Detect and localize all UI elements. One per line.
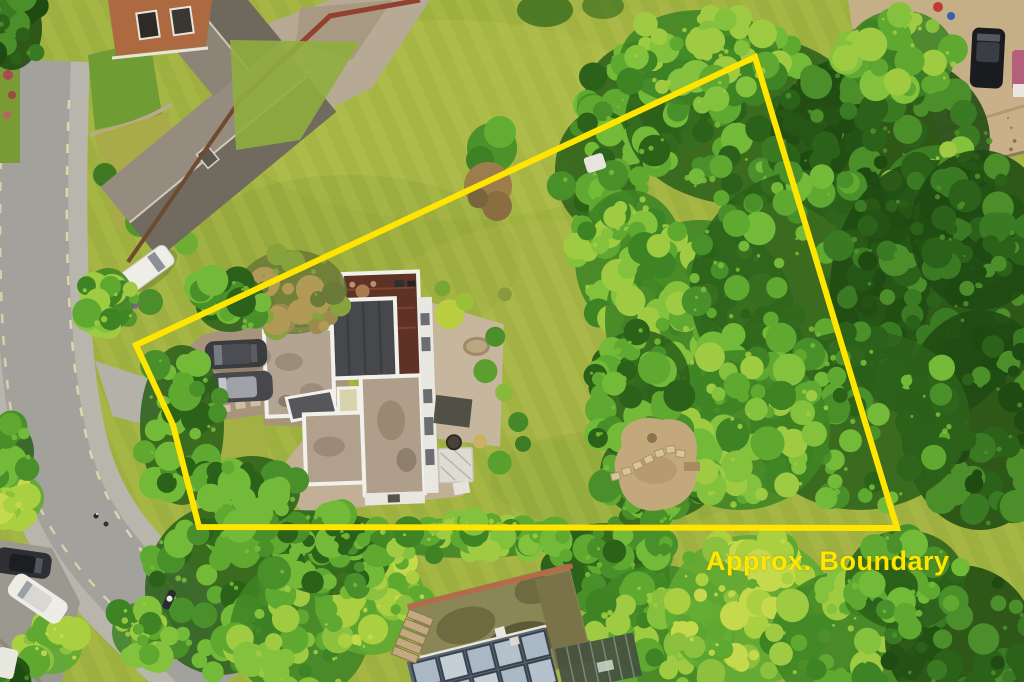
tree-canopy-blob [940,234,946,240]
tree-canopy-blob [607,610,613,616]
tree-canopy-blob [628,341,632,345]
tree-canopy-blob [755,488,768,501]
tree-canopy-blob [847,579,850,582]
tree-canopy-blob [322,281,346,305]
tree-canopy-blob [927,660,947,680]
partial-car [1013,84,1024,97]
tree-canopy-blob [724,275,750,301]
tree-canopy-blob [123,282,138,297]
tree-canopy-blob [885,536,889,540]
stone [676,450,686,458]
tree-canopy-blob [601,373,605,377]
tree-canopy-blob [861,360,867,366]
tree-canopy-blob [651,28,668,45]
tree-canopy-blob [299,664,312,677]
tree-canopy-blob [748,413,751,416]
tree-canopy-blob [182,578,187,583]
tree-canopy-blob [306,515,311,520]
tree-canopy-blob [830,355,836,361]
tree-canopy-blob [325,623,327,625]
tree-canopy-blob [603,465,609,471]
tree-canopy-blob [745,158,748,161]
tree-canopy-blob [870,128,876,134]
tree-canopy-blob [663,380,695,412]
tree-canopy-blob [951,558,969,576]
tree-canopy-blob [882,18,885,21]
tree-canopy-blob [730,417,734,421]
tree-canopy-blob [986,629,990,633]
tree-canopy-blob [921,445,946,470]
tree-canopy-blob [802,390,806,394]
tree-canopy-blob [854,28,888,62]
tree-canopy-blob [709,650,715,656]
window [424,417,434,435]
table [647,433,657,443]
tree-canopy-blob [943,77,946,80]
stone [235,401,246,409]
tree-canopy-blob [285,586,291,592]
tree-canopy-blob [489,519,495,525]
tree-canopy-blob [258,671,264,677]
tree-canopy-blob [427,538,430,541]
tree-canopy-blob [716,417,750,451]
tree-canopy-blob [654,338,661,345]
tree-canopy-blob [395,596,399,600]
tree-canopy-blob [129,314,132,317]
tree-canopy-blob [977,381,984,388]
tree-canopy-blob [291,575,297,581]
tree-canopy-blob [907,535,910,538]
tree-canopy-blob [232,281,235,284]
tree-canopy-blob [641,413,647,419]
door [388,494,400,502]
tree-canopy-blob [597,562,603,568]
tree-canopy-blob [798,482,802,486]
tree-canopy-blob [354,562,365,573]
tree-canopy-blob [918,26,922,30]
tree-canopy-blob [901,375,912,386]
tree-canopy-blob [910,590,915,595]
tree-canopy-blob [996,387,999,390]
tree-canopy-blob [280,677,283,680]
tree-canopy-blob [684,621,699,636]
tree-canopy-blob [841,613,844,616]
tree-canopy-blob [904,247,907,250]
tree-canopy-blob [597,547,600,550]
tree-canopy-blob [963,494,989,520]
tree-canopy-blob [343,533,350,540]
tree-canopy-blob [982,235,999,252]
tree-canopy-blob [393,516,424,547]
tree-canopy-blob [245,549,250,554]
tree-canopy-blob [854,248,860,254]
tree-canopy-blob [231,604,234,607]
window [423,389,432,403]
flower-bed [3,111,11,119]
tree-canopy-blob [895,409,922,436]
tree-canopy-blob [734,657,749,672]
tree-canopy-blob [726,554,728,556]
tree-canopy-blob [253,516,259,522]
tree-canopy-blob [835,73,840,78]
tree-canopy-blob [751,426,785,460]
stone-circle [464,338,489,355]
tree-canopy-blob [15,457,39,481]
tree-canopy-blob [280,570,284,574]
tree-canopy-blob [782,631,785,634]
tree-canopy-blob [255,609,265,619]
tree-canopy-blob [358,614,388,644]
tree-canopy-blob [357,641,362,646]
tree-canopy-blob [652,78,657,83]
tree-canopy-blob [904,289,922,307]
window [420,313,429,325]
tree-canopy-blob [145,419,167,441]
stone [610,472,620,481]
tree-canopy-blob [874,358,907,391]
tree-canopy-blob [611,405,615,409]
tree-canopy-blob [880,289,896,305]
tree-canopy-blob [850,419,855,424]
bbq-grill [394,280,404,287]
tree-canopy-blob [766,277,787,298]
tree-canopy-blob [773,354,806,387]
tree-canopy-blob [667,655,677,665]
tree-canopy-blob [243,319,248,324]
tree-canopy-blob [936,186,941,191]
tree-canopy-blob [290,497,295,502]
tree-canopy-blob [982,335,1004,357]
tree-canopy-blob [614,204,621,211]
tree-canopy-blob [929,355,955,381]
tree-canopy-blob [425,546,444,565]
tree-canopy-blob [694,589,707,602]
tree-canopy-blob [660,519,664,523]
tree-canopy-blob [751,384,766,399]
tree-canopy-blob [125,632,130,637]
bush [137,289,163,315]
tree-canopy-blob [682,28,687,33]
tree-canopy-blob [653,558,655,560]
tree-canopy-blob [935,194,940,199]
tree-canopy-blob [1009,600,1023,614]
tree-canopy-blob [267,521,270,524]
tree-canopy-blob [800,65,825,90]
tree-canopy-blob [806,411,811,416]
tree-canopy-blob [819,445,830,456]
tree-canopy-blob [657,554,663,560]
tree-canopy-blob [653,603,658,608]
tree-canopy-blob [963,301,968,306]
tree-canopy-blob [326,516,332,522]
tree-canopy-blob [810,164,835,189]
tree-canopy-blob [870,59,888,77]
tree-canopy-blob [962,374,974,386]
tree-canopy-blob [363,645,365,647]
garden-item-red [933,2,943,12]
tree-canopy-blob [950,100,977,127]
tree-canopy-blob [262,275,265,278]
skylight [338,388,359,415]
tree-canopy-blob [867,403,890,426]
tree-canopy-blob [11,34,14,37]
tree-canopy-blob [392,538,396,542]
tree-canopy-blob [776,589,809,622]
tree-canopy-blob [663,32,668,37]
tree-canopy-blob [669,633,688,652]
tree-canopy-blob [338,633,353,648]
tree-canopy-blob [26,455,31,460]
tree-canopy-blob [828,474,843,489]
tree-canopy-blob [683,326,689,332]
tree-canopy-blob [1009,435,1013,439]
tree-canopy-blob [579,63,607,91]
tree-canopy-blob [728,591,734,597]
tree-canopy-blob [347,514,351,518]
tree-canopy-blob [823,230,854,261]
tree-canopy-blob [869,484,875,490]
tree-canopy-blob [748,19,777,48]
tree-canopy-blob [774,258,784,268]
tree-canopy-blob [827,604,838,615]
tree-canopy-blob [639,149,644,154]
tree-canopy-blob [272,268,279,275]
tree-canopy-blob [713,261,717,265]
tree-canopy-blob [955,221,972,238]
aerial-photo-canvas [0,0,1024,682]
tree-canopy-blob [266,244,288,266]
tree-canopy-blob [647,234,671,258]
tree-canopy-blob [607,64,612,69]
tree-canopy-blob [824,405,829,410]
tree-canopy-blob [11,53,22,64]
tree-canopy-blob [640,196,646,202]
tree-canopy-blob [319,321,330,332]
tree-canopy-blob [11,434,17,440]
tree-canopy-blob [614,347,621,354]
tree-canopy-blob [547,171,576,200]
tree-canopy-blob [298,574,303,579]
tree-canopy-blob [896,200,900,204]
tree-canopy-blob [858,251,877,270]
tree-canopy-blob [766,323,797,354]
stone-roof-speckle [1013,139,1017,143]
tree-canopy-blob [802,421,827,446]
tree-canopy-blob [699,441,706,448]
tree-canopy-blob [192,602,218,628]
tree-canopy-blob [709,176,715,182]
tree-canopy-blob [833,388,848,403]
tree-canopy-blob [932,507,935,510]
tree-canopy-blob [729,314,733,318]
tree-canopy-blob [149,571,166,588]
tree-canopy-blob [301,571,323,593]
tree-canopy-blob [282,283,294,295]
tree-canopy-blob [114,293,118,297]
tree-canopy-blob [868,282,871,285]
tree-canopy-blob [710,155,733,178]
tree-canopy-blob [18,428,30,440]
tree-canopy-blob [898,616,922,640]
tree-canopy-blob [101,316,107,322]
tree-canopy-blob [744,194,762,212]
tree-canopy-blob [704,86,729,111]
tree-canopy-blob [731,457,735,461]
tree-canopy-blob [289,546,301,558]
tree-canopy-blob [910,11,915,16]
tree-canopy-blob [946,51,950,55]
tree-canopy-blob [858,570,885,597]
tree-canopy-blob [184,350,211,377]
tree-canopy-blob [661,671,665,675]
tree-canopy-blob [313,650,318,655]
tree-canopy-blob [659,543,670,554]
tree-canopy-blob [24,675,29,680]
tree-canopy-blob [705,230,709,234]
tree-canopy-blob [215,488,221,494]
tree-canopy-blob [137,635,149,647]
tree-canopy-blob [765,624,783,642]
tree-canopy-blob [160,627,179,646]
tree-canopy-blob [790,400,815,425]
tree-canopy-blob [810,659,821,670]
tree-canopy-blob [624,227,628,231]
tree-canopy-blob [648,146,653,151]
tree-canopy-blob [406,571,420,585]
tree-canopy-blob [827,193,830,196]
flower-bed [3,70,13,80]
tree-canopy-blob [809,326,815,332]
tree-canopy-blob [840,102,858,120]
tree-canopy-blob [689,360,694,365]
tree-canopy-blob [647,593,653,599]
tree-canopy-blob [816,332,820,336]
tree-canopy-blob [718,81,721,84]
tree-canopy-blob [122,617,129,624]
tree-canopy-blob [996,447,1001,452]
tree-canopy-blob [306,560,311,565]
tree-canopy-blob [837,171,854,188]
tree-canopy-blob [327,541,338,552]
window [421,337,430,351]
tree-canopy-blob [153,641,157,645]
tree-canopy-blob [827,367,846,386]
tree-canopy-blob [465,521,468,524]
tree-canopy-blob [691,234,713,256]
tree-canopy-blob [261,656,281,676]
tree-canopy-blob [852,583,858,589]
tree-canopy-blob [356,533,370,547]
tree-canopy-blob [378,605,381,608]
tree-canopy-blob [869,350,873,354]
tree-canopy-blob [233,487,235,489]
tree-canopy-blob [563,177,567,181]
tree-canopy-blob [695,573,708,586]
tree-canopy-blob [883,610,886,613]
tree-canopy-blob [617,68,644,95]
tree-canopy-blob [173,473,178,478]
bench [684,462,700,471]
tree-canopy-blob [724,347,728,351]
tree-canopy-blob [714,593,718,597]
tree-canopy-blob [984,451,987,454]
tree-canopy-blob [921,76,939,94]
tree-canopy-blob [20,507,23,510]
tree-canopy-blob [621,98,624,101]
tree-canopy-blob [150,395,153,398]
tree-canopy-blob [936,156,940,160]
tree-canopy-blob [665,80,671,86]
tree-canopy-blob [130,292,133,295]
tree-canopy-blob [618,259,638,279]
tree-canopy-blob [808,110,812,114]
stone-roof-speckle [1007,117,1009,119]
tree-canopy-blob [175,575,181,581]
tree-canopy-blob [16,27,30,41]
tree-canopy-blob [795,252,799,256]
tree-canopy-blob [586,555,591,560]
tree-canopy-blob [403,533,406,536]
tree-canopy-blob [690,273,700,283]
tree-canopy-blob [368,634,373,639]
tree-canopy-blob [760,662,777,679]
tree-canopy-blob [975,174,980,179]
tree-canopy-blob [997,434,1021,458]
tree-canopy-blob [2,460,7,465]
solar-panel [520,631,550,661]
tree-canopy-blob [480,540,502,562]
tree-canopy-blob [730,501,737,508]
tree-canopy-blob [854,628,881,655]
tree-canopy-blob [975,283,981,289]
tree-canopy-blob [632,210,636,214]
tree-canopy-blob [353,583,357,587]
tree-canopy-blob [857,215,877,235]
tree-canopy-blob [984,131,988,135]
tree-canopy-blob [739,73,742,76]
tree-canopy-blob [887,2,913,28]
tree-canopy-blob [94,320,100,326]
tree-canopy-blob [896,35,913,52]
tree-canopy-blob [221,461,234,474]
tree-canopy-blob [955,429,977,451]
tree-canopy-blob [620,376,626,382]
tree-canopy-blob [949,179,982,212]
tree-canopy-blob [877,241,898,262]
car-windshield [977,33,1000,41]
tree-canopy-blob [634,54,638,58]
tree-canopy-blob [638,328,642,332]
tree-canopy-blob [804,159,807,162]
tree-canopy-blob [930,383,953,406]
tree-canopy-blob [690,637,694,641]
tree-canopy-blob [617,105,620,108]
tree-canopy-blob [124,609,128,613]
tree-canopy-blob [202,661,223,682]
tree-canopy-blob [120,647,139,666]
car-roof [221,343,252,365]
tree-canopy-blob [242,324,248,330]
tree-canopy-blob [643,205,649,211]
tree-canopy-blob [850,43,857,50]
tree-canopy-blob [839,429,862,452]
tree-canopy-blob [637,587,641,591]
tree-canopy-blob [267,639,271,643]
tree-canopy-blob [749,650,759,660]
tree-canopy-blob [718,262,724,268]
tree-canopy-blob [875,51,879,55]
tree-canopy-blob [255,650,262,657]
